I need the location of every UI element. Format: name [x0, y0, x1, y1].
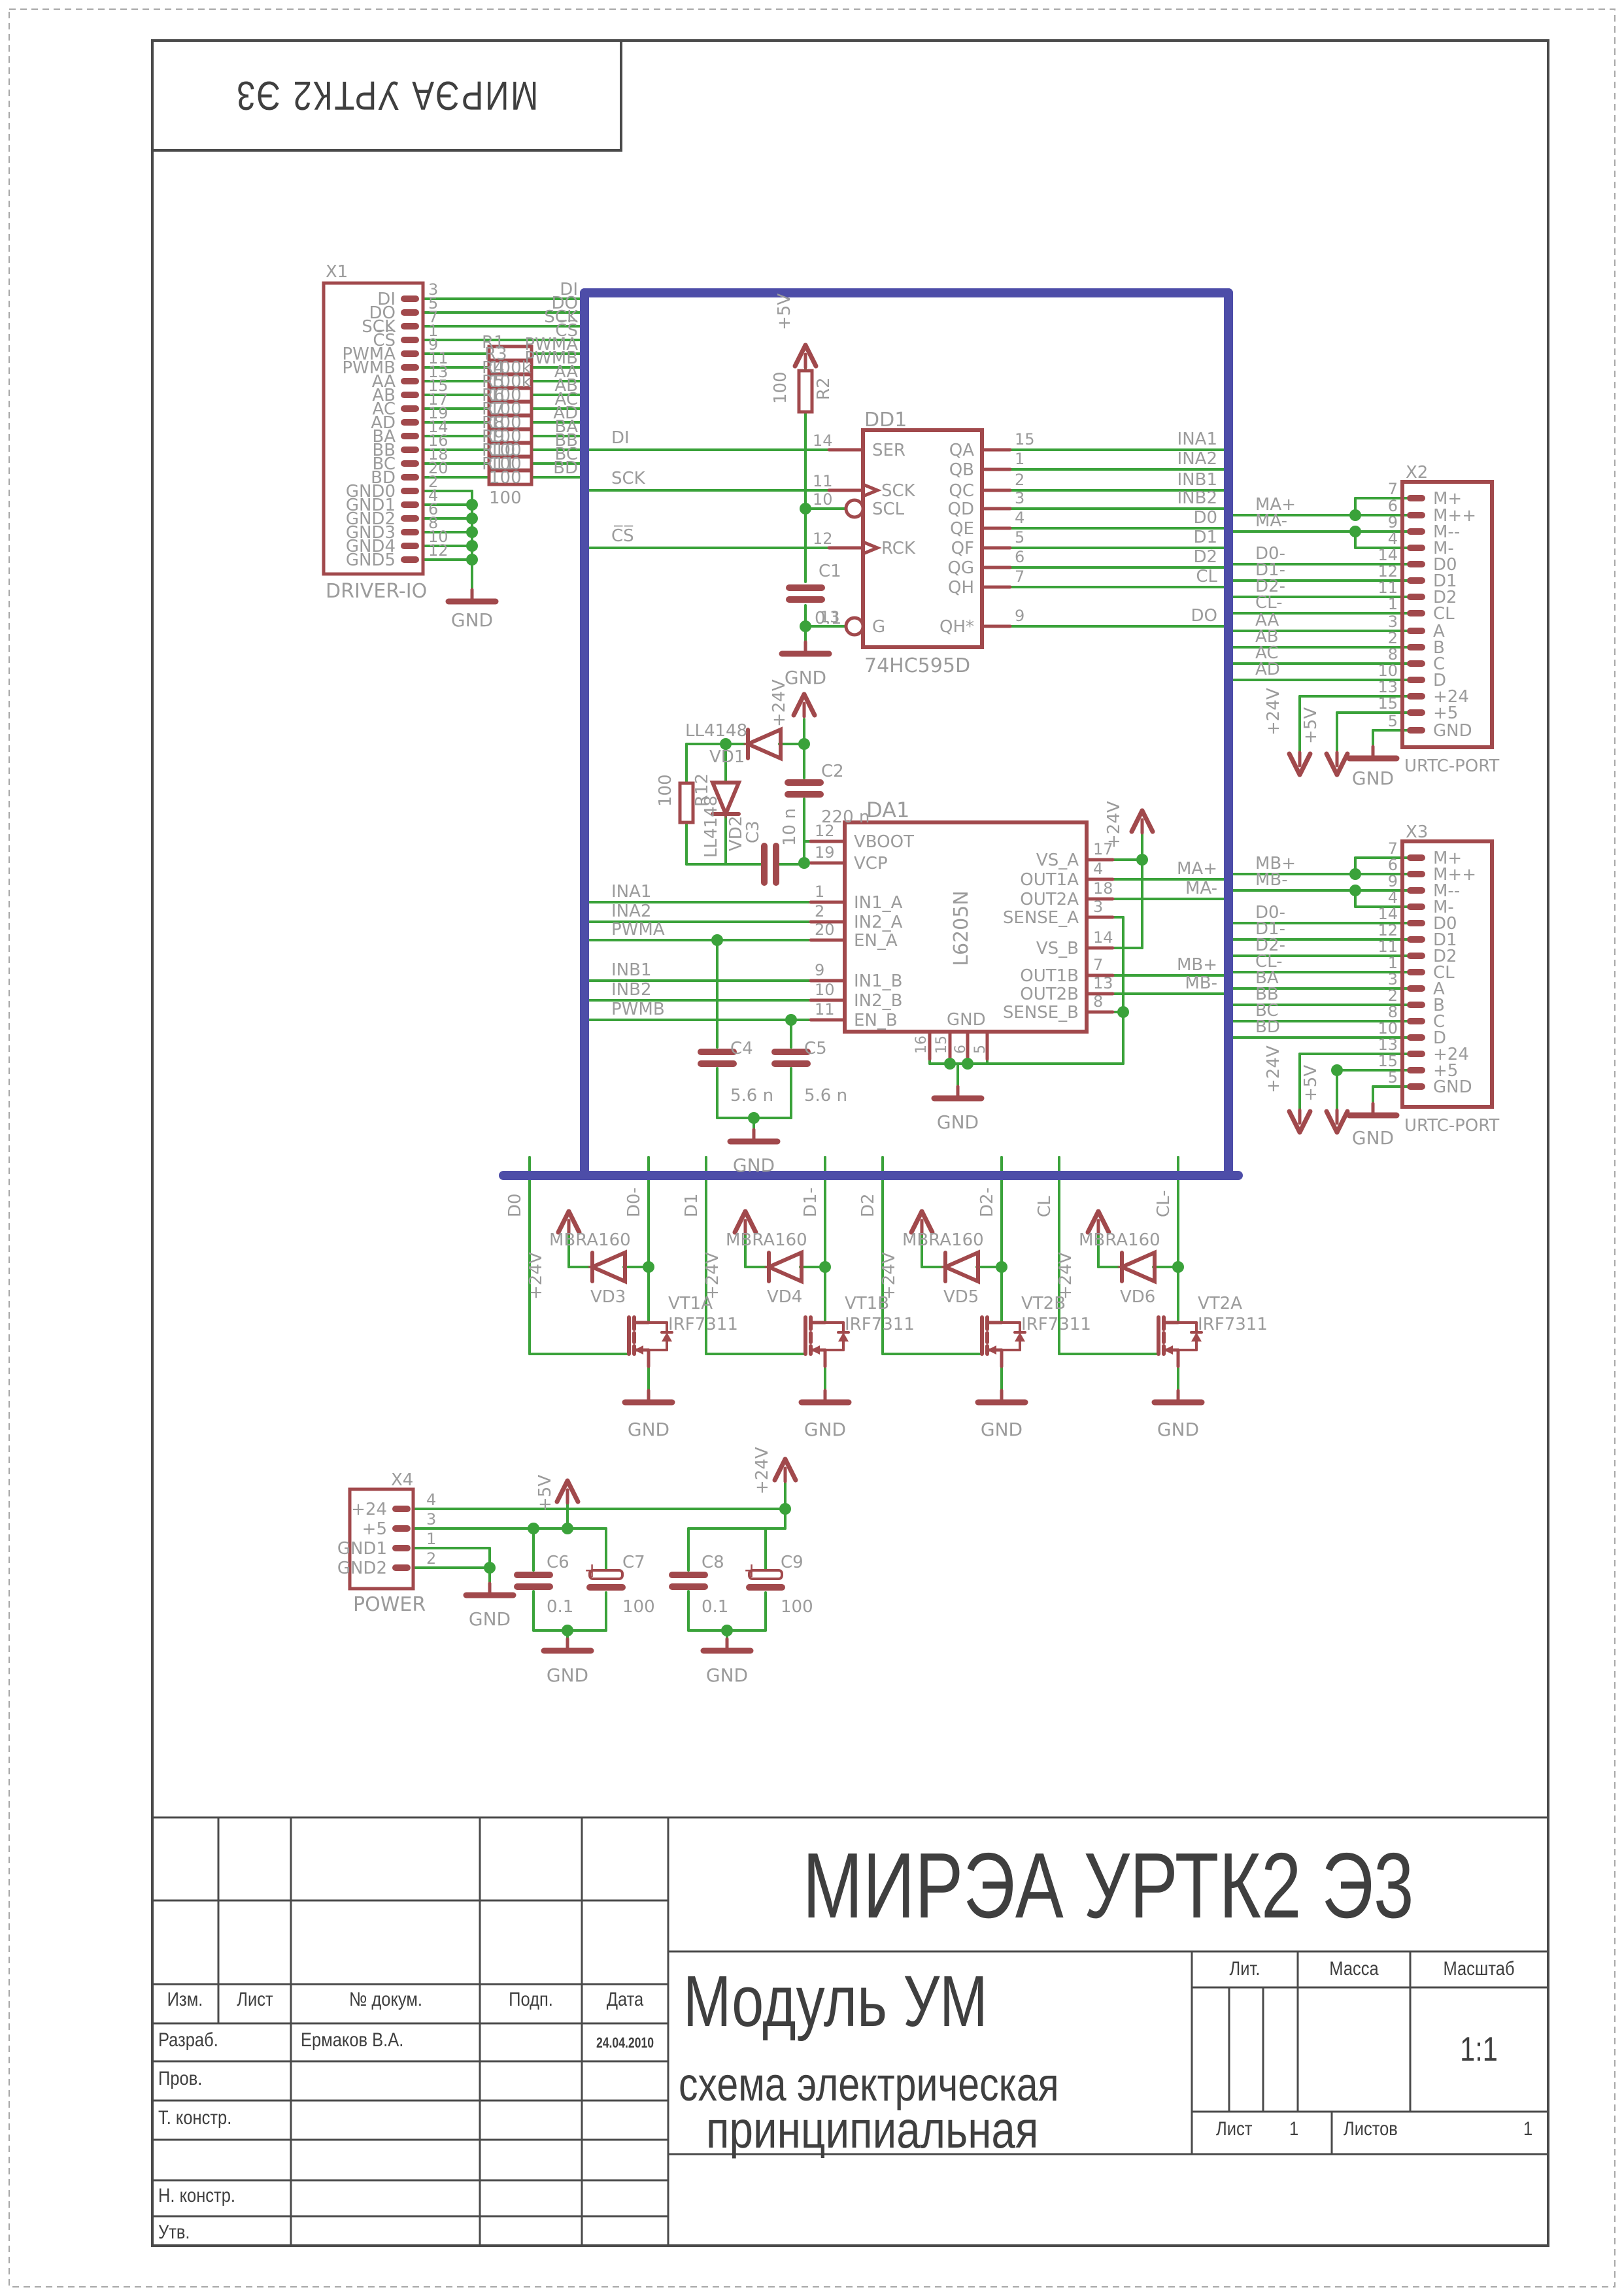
diode-icon: [592, 1253, 625, 1281]
schematic-label: DI: [611, 428, 630, 448]
schematic-label: +5: [1433, 703, 1458, 723]
schematic-label: RCK: [881, 539, 916, 558]
schematic-label: INA1: [1177, 430, 1217, 449]
schematic-label: GND: [733, 1155, 775, 1176]
connector-pin: [401, 392, 419, 398]
schematic-label: 3: [426, 1510, 436, 1528]
connector-pin: [1407, 1018, 1425, 1024]
schematic-label: OUT1B: [1020, 966, 1079, 986]
schematic-label: IN1_A: [854, 893, 903, 913]
connector-pin: [401, 364, 419, 371]
schematic-label: GND: [628, 1419, 669, 1440]
schematic-label: 9: [1388, 872, 1398, 890]
schematic-label: R2: [814, 377, 834, 400]
schematic-label: 1: [1015, 450, 1024, 468]
connector-pin: [1407, 854, 1425, 861]
connector-pin: [1407, 495, 1425, 501]
tb-nkontr-label: Н. констр.: [158, 2185, 235, 2207]
schematic-label: 12: [813, 530, 833, 548]
schematic-label: 0.1: [702, 1597, 728, 1617]
schematic-label: GND: [981, 1419, 1023, 1440]
schematic-label: D2: [1193, 547, 1217, 567]
schematic-label: QC: [949, 481, 974, 501]
schematic-label: 15: [934, 1036, 950, 1054]
schematic-label: SER: [872, 441, 905, 460]
connector-pin: [401, 447, 419, 453]
tb-razrab-label: Разраб.: [158, 2029, 218, 2051]
schematic-label: C8: [702, 1553, 724, 1572]
schematic-label: QB: [949, 460, 974, 480]
schematic-label: X3: [1406, 822, 1428, 842]
connector-pin: [401, 378, 419, 384]
wire-junction: [562, 1523, 573, 1534]
connector-pin: [401, 405, 419, 412]
schematic-label: MB+: [1177, 955, 1217, 975]
wire-junction: [466, 513, 478, 524]
schematic-label: INB1: [1177, 470, 1218, 490]
schematic-label: CL-: [1255, 593, 1283, 613]
connector-pin: [1407, 985, 1425, 992]
schematic-label: BD: [1255, 1017, 1280, 1037]
schematic-label: GND: [947, 1010, 986, 1030]
schematic-label: 100: [622, 1597, 655, 1617]
tb-masshtab-label: Масштаб: [1443, 1958, 1514, 1980]
wire-junction: [962, 1058, 973, 1070]
wire-junction: [800, 503, 811, 515]
connector-pin: [392, 1525, 411, 1532]
schematic-label: X4: [391, 1470, 413, 1490]
schematic-label: D1: [682, 1193, 702, 1217]
schematic-label: VCP: [854, 854, 888, 873]
connector-pin: [401, 309, 419, 316]
schematic-label: POWER: [353, 1593, 426, 1616]
schematic-label: CL: [1196, 567, 1217, 586]
connector-pin: [401, 433, 419, 439]
titleblock-module-name: Модуль УМ: [683, 1960, 988, 2043]
schematic-label: 4: [1388, 888, 1398, 907]
tb-prov-label: Пров.: [158, 2068, 202, 2090]
connector-pin: [1407, 1051, 1425, 1057]
diode-icon: [769, 1253, 802, 1281]
schematic-label: D0: [505, 1193, 525, 1217]
schematic-label: IN2_A: [854, 913, 903, 932]
schematic-label: G: [872, 617, 885, 637]
schematic-label: 7: [1093, 956, 1103, 974]
connector-pin: [401, 295, 419, 302]
schematic-label: IN2_B: [854, 991, 903, 1011]
schematic-label: 0.1: [547, 1597, 573, 1617]
schematic-label: +: [584, 1559, 600, 1582]
wire-junction: [562, 1625, 573, 1636]
connector-pin: [401, 529, 419, 535]
schematic-label: GND: [804, 1419, 846, 1440]
schematic-label: DD1: [864, 409, 907, 431]
schematic-label: GND: [706, 1664, 748, 1686]
schematic-label: 12: [815, 822, 835, 840]
schematic-label: LL4148: [702, 796, 721, 858]
schematic-label: IRF7311: [845, 1315, 915, 1334]
schematic-label: DA1: [866, 798, 909, 822]
wire-junction: [466, 554, 478, 566]
connector-pin: [1407, 677, 1425, 683]
tb-col-data: Дата: [607, 1989, 643, 2011]
schematic-label: 74HC595D: [864, 654, 970, 677]
schematic-label: 2: [1015, 471, 1024, 489]
schematic-label: GND2: [337, 1559, 387, 1578]
wire-junction: [1136, 854, 1148, 866]
wire-junction: [643, 1261, 654, 1273]
schematic-label: +5V: [1301, 1065, 1321, 1102]
schematic-label: D1-: [801, 1187, 820, 1217]
schematic-label: C9: [781, 1553, 804, 1572]
wire-junction: [484, 1562, 496, 1574]
schematic-label: +24V: [1104, 801, 1124, 849]
schematic-label: 9: [1388, 513, 1398, 532]
schematic-label: 5.6 n: [804, 1086, 847, 1106]
wire-junction: [798, 738, 810, 750]
connector-pin: [1407, 1002, 1425, 1008]
connector-pin: [1407, 577, 1425, 584]
schematic-label: VS_A: [1036, 851, 1079, 870]
diode-icon: [1122, 1253, 1155, 1281]
schematic-label: VD3: [590, 1287, 626, 1307]
schematic-label: 6: [1015, 548, 1024, 566]
schematic-label: GND: [785, 667, 826, 688]
schematic-label: 12: [1378, 562, 1398, 581]
tb-list-number: 1: [1289, 2118, 1298, 2140]
connector-pin: [1407, 561, 1425, 567]
wire-junction: [748, 1112, 760, 1124]
schematic-label: URTC-PORT: [1404, 756, 1499, 776]
schematic-label: 1: [426, 1530, 436, 1548]
schematic-label: L6205N: [950, 890, 973, 966]
schematic-label: GND: [451, 609, 493, 631]
schematic-label: 15: [1015, 430, 1035, 448]
schematic-label: IRF7311: [668, 1315, 738, 1334]
schematic-label: +24V: [703, 1252, 722, 1300]
schematic-label: 100: [656, 774, 675, 807]
schematic-label: 11: [1378, 937, 1398, 956]
connector-pin: [392, 1545, 411, 1551]
schematic-label: +5V: [775, 294, 794, 330]
wire-junction: [466, 499, 478, 511]
schematic-label: VD1: [709, 747, 745, 767]
stamp-text: МИРЭА УРТК2 Э3: [195, 41, 579, 150]
connector-pin: [1407, 512, 1425, 518]
schematic-label: INA2: [1177, 449, 1217, 469]
schematic-label: 100: [771, 371, 790, 404]
schematic-label: 12: [428, 541, 448, 560]
schematic-label: GND1: [337, 1539, 387, 1559]
schematic-label: +5V: [1301, 707, 1321, 744]
schematic-label: IRF7311: [1198, 1315, 1268, 1334]
schematic-label: 11: [813, 472, 833, 490]
schematic-label: 13: [820, 608, 840, 626]
schematic-label: OUT1A: [1020, 870, 1079, 890]
schematic-label: OUT2B: [1020, 985, 1079, 1004]
schematic-label: 13: [1378, 678, 1398, 696]
tb-utv-label: Утв.: [158, 2221, 190, 2244]
schematic-label: QH*: [939, 617, 974, 637]
wire-junction: [1117, 1006, 1129, 1018]
schematic-label: INA2: [611, 902, 651, 921]
schematic-label: MB-: [1255, 870, 1288, 890]
connector-pin: [1407, 660, 1425, 667]
schematic-label: D2-: [977, 1187, 997, 1217]
tb-listov-label: Листов: [1344, 2118, 1398, 2140]
schematic-label: +24V: [753, 1447, 772, 1494]
tb-col-podp: Подп.: [509, 1989, 553, 2011]
schematic-label: VD6: [1120, 1287, 1155, 1307]
tb-razrab-name: Ермаков В.А.: [301, 2029, 403, 2051]
inverter-bubble-icon: [846, 618, 863, 635]
connector-pin: [401, 488, 419, 494]
schematic-label: 10: [1378, 662, 1398, 680]
schematic-label: 12: [1378, 921, 1398, 939]
schematic-label: INB1: [611, 960, 652, 980]
connector-pin: [1407, 1067, 1425, 1073]
schematic-label: 4: [426, 1491, 436, 1509]
schematic-label: 5: [972, 1045, 989, 1054]
schematic-label: MBRA160: [902, 1230, 984, 1250]
connector-pin: [1407, 953, 1425, 959]
connector-pin: [1407, 887, 1425, 894]
schematic-label: DO: [1191, 606, 1218, 626]
schematic-label: QF: [951, 539, 974, 558]
schematic-label: 2: [1388, 629, 1398, 647]
schematic-label: 7: [1015, 567, 1024, 586]
schematic-label: +24V: [1264, 1045, 1283, 1093]
schematic-label: 1: [815, 883, 824, 901]
schematic-label: EN_A: [854, 931, 898, 951]
schematic-label: 14: [1093, 928, 1113, 947]
schematic-label: C3: [743, 820, 763, 843]
schematic-label: X2: [1406, 463, 1428, 482]
schematic-label: D0: [1193, 508, 1217, 528]
schematic-label: +24V: [1056, 1252, 1075, 1300]
titleblock-subtitle-2: принципиальная: [706, 2100, 1038, 2160]
tb-scale-value: 1:1: [1460, 2030, 1498, 2069]
schematic-label: 13: [1378, 1036, 1398, 1054]
diode-icon: [945, 1253, 978, 1281]
schematic-label: PWMA: [611, 920, 665, 939]
connector-pin: [1407, 920, 1425, 926]
schematic-label: CL: [1433, 604, 1455, 624]
schematic-label: GND: [937, 1111, 979, 1133]
schematic-label: MBRA160: [1079, 1230, 1160, 1250]
schematic-label: GND: [1433, 1077, 1472, 1097]
inverter-bubble-icon: [846, 500, 863, 517]
schematic-label: 5.6 n: [730, 1086, 773, 1106]
connector-pin: [401, 543, 419, 549]
connector-pin: [1407, 936, 1425, 943]
schematic-label: VT2A: [1198, 1294, 1242, 1313]
connector-pin: [1407, 693, 1425, 700]
schematic-label: MA-: [1185, 879, 1217, 898]
schematic-label: 11: [1378, 579, 1398, 597]
schematic-label: 11: [815, 1000, 835, 1019]
connector-pin: [1407, 709, 1425, 716]
connector-pin: [392, 1506, 411, 1512]
schematic-label: OUT2A: [1020, 890, 1079, 909]
wire-junction: [1349, 868, 1361, 880]
schematic-label: GND: [1352, 768, 1394, 789]
schematic-label: VS_B: [1036, 939, 1079, 958]
schematic-label: 3: [1093, 898, 1103, 916]
schematic-label: 3: [1015, 489, 1024, 507]
schematic-label: 3: [1388, 613, 1398, 631]
connector-pin: [401, 501, 419, 508]
diode-icon: [748, 730, 781, 758]
schematic-label: +24V: [770, 679, 789, 727]
tb-listov-number: 1: [1523, 2118, 1532, 2140]
schematic-label: 6: [1388, 856, 1398, 874]
schematic-label: D0-: [624, 1187, 644, 1217]
schematic-label: +24V: [879, 1252, 899, 1300]
schematic-label: 7: [1388, 839, 1398, 858]
schematic-label: 8: [1388, 1003, 1398, 1021]
schematic-label: CL-: [1154, 1190, 1174, 1217]
schematic-label: QG: [947, 558, 974, 578]
connector-pin: [401, 323, 419, 329]
component-outline: [799, 371, 812, 412]
schematic-label: PWMB: [611, 1000, 665, 1019]
schematic-label: 5: [1388, 712, 1398, 730]
schematic-label: 15: [1378, 1052, 1398, 1070]
schematic-label: MBRA160: [726, 1230, 807, 1250]
schematic-label: +5: [362, 1519, 387, 1539]
tb-lit-label: Лит.: [1230, 1958, 1260, 1980]
schematic-label: C1: [819, 562, 841, 581]
connector-pin: [1407, 644, 1425, 650]
connector-pin: [401, 419, 419, 426]
schematic-label: SCK: [881, 481, 916, 501]
schematic-label: VBOOT: [854, 832, 914, 852]
wire-junction: [1331, 1064, 1343, 1076]
connector-pin: [401, 337, 419, 343]
connector-pin: [401, 350, 419, 357]
schematic-label: +24V: [1264, 688, 1283, 735]
connector-pin: [1407, 871, 1425, 877]
schematic-label: 100: [781, 1597, 813, 1617]
wire-junction: [779, 1503, 791, 1515]
schematic-label: 15: [1378, 694, 1398, 713]
tb-col-doc: № докум.: [349, 1989, 422, 2011]
schematic-label: 3: [1388, 970, 1398, 988]
connector-pin: [401, 460, 419, 467]
schematic-label: 14: [1378, 905, 1398, 923]
tb-col-list: Лист: [237, 1989, 273, 2011]
schematic-label: GND: [1433, 721, 1472, 741]
schematic-label: C6: [547, 1553, 569, 1572]
tb-razrab-date: 24.04.2010: [596, 2034, 654, 2051]
wire-junction: [466, 540, 478, 552]
schematic-label: 4: [1093, 860, 1103, 878]
schematic-label: DRIVER-IO: [326, 580, 427, 603]
schematic-label: MBRA160: [549, 1230, 631, 1250]
schematic-label: 8: [1388, 645, 1398, 664]
schematic-label: AD: [1255, 660, 1280, 679]
schematic-label: VD5: [943, 1287, 979, 1307]
schematic-label: GND: [1157, 1419, 1199, 1440]
wire-junction: [798, 857, 810, 869]
wire-junction: [1349, 526, 1361, 537]
wire-junction: [528, 1523, 539, 1534]
schematic-label: 16: [913, 1036, 930, 1054]
schematic-label: LL4148: [685, 721, 747, 741]
connector-pin: [392, 1564, 411, 1571]
tb-list-label: Лист: [1216, 2118, 1252, 2140]
schematic-label: +5V: [535, 1475, 555, 1511]
schematic-canvas: X1DRIVER-IODIDOSCKC̅S̅PWMAPWMBAAABACADBA…: [0, 0, 1624, 2296]
schematic-label: 5: [1015, 528, 1024, 547]
schematic-label: C2: [821, 762, 844, 781]
schematic-label: INB2: [611, 980, 652, 1000]
schematic-label: 18: [1093, 879, 1113, 898]
schematic-label: 5: [1388, 1068, 1398, 1087]
connector-pin: [1407, 594, 1425, 600]
schematic-label: QH: [948, 578, 974, 598]
schematic-label: 14: [813, 431, 833, 450]
schematic-label: INA1: [611, 882, 651, 902]
connector-pin: [1407, 610, 1425, 616]
schematic-label: 14: [1378, 546, 1398, 564]
schematic-label: VD4: [767, 1287, 802, 1307]
schematic-label: 2: [1388, 987, 1398, 1005]
schematic-label: 9: [1015, 607, 1024, 625]
schematic-label: 7: [1388, 480, 1398, 498]
schematic-label: C5: [804, 1039, 827, 1058]
connector-pin: [1407, 727, 1425, 734]
schematic-label: QD: [948, 499, 975, 519]
schematic-label: 9: [815, 961, 824, 979]
schematic-label: URTC-PORT: [1404, 1116, 1499, 1136]
schematic-label: SENSE_A: [1003, 908, 1079, 928]
schematic-page: X1DRIVER-IODIDOSCKC̅S̅PWMAPWMBAAABACADBA…: [0, 0, 1624, 2296]
wire-junction: [711, 934, 723, 946]
tb-tkontr-label: Т. констр.: [158, 2107, 231, 2129]
schematic-label: +: [743, 1559, 760, 1582]
tb-massa-label: Масса: [1329, 1958, 1378, 1980]
schematic-label: 10: [813, 490, 833, 509]
schematic-label: 6: [1388, 497, 1398, 515]
schematic-label: 10 n: [780, 808, 800, 846]
schematic-label: IRF7311: [1021, 1315, 1091, 1334]
schematic-label: GND: [1352, 1127, 1394, 1149]
wire-junction: [996, 1261, 1007, 1273]
schematic-label: 1: [1388, 954, 1398, 972]
schematic-label: 4: [1015, 509, 1024, 527]
wire-junction: [944, 1058, 956, 1070]
connector-pin: [401, 474, 419, 481]
schematic-label: 100: [489, 468, 522, 488]
schematic-label: 1: [1388, 595, 1398, 613]
tb-col-izm: Изм.: [167, 1989, 203, 2011]
connector-pin: [401, 515, 419, 522]
schematic-label: 100: [489, 488, 522, 508]
schematic-label: C7: [622, 1553, 645, 1572]
schematic-label: 10: [1378, 1019, 1398, 1038]
schematic-label: 6: [953, 1045, 969, 1054]
wire-junction: [1349, 509, 1361, 521]
schematic-label: C̅S̅: [611, 525, 634, 546]
schematic-label: X1: [326, 262, 348, 282]
connector-pin: [401, 556, 419, 563]
wire-junction: [1349, 885, 1361, 896]
wire-junction: [466, 526, 478, 538]
schematic-label: 8: [1093, 992, 1103, 1011]
schematic-label: 13: [1093, 974, 1113, 992]
